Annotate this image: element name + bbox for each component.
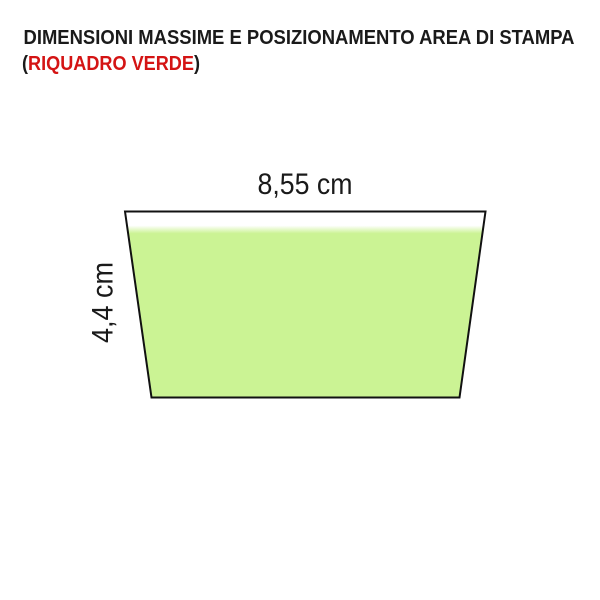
svg-text:(RIQUADRO VERDE): (RIQUADRO VERDE): [22, 53, 200, 75]
svg-text:8,55 cm: 8,55 cm: [258, 168, 353, 201]
svg-text:4,4 cm: 4,4 cm: [87, 262, 120, 343]
svg-text:DIMENSIONI MASSIME E POSIZIONA: DIMENSIONI MASSIME E POSIZIONAMENTO AREA…: [24, 27, 575, 49]
